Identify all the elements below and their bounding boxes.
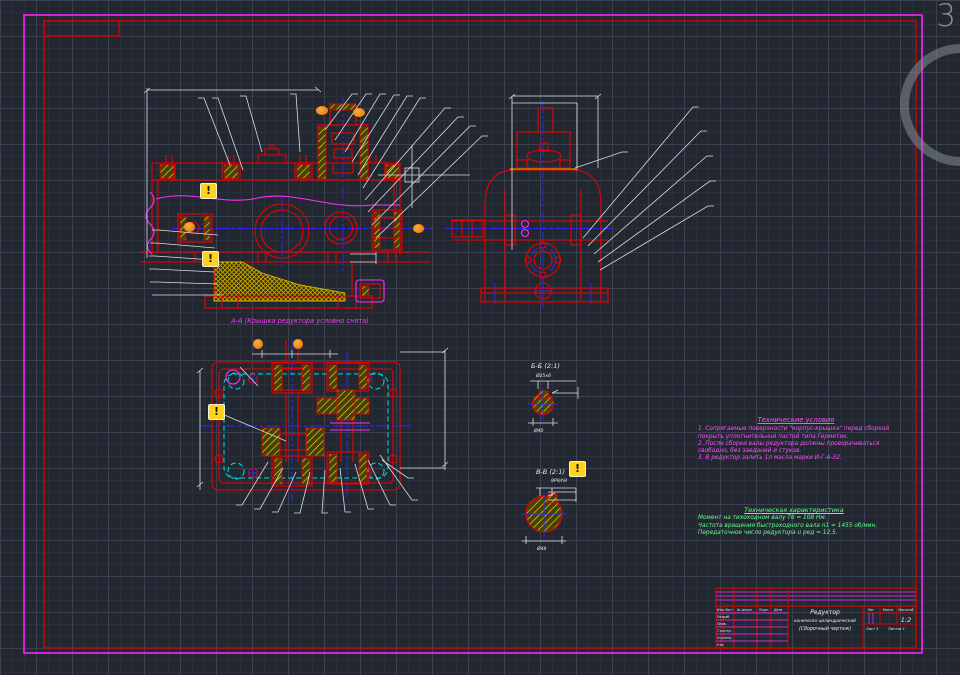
tb-product: Редуктор: [810, 609, 840, 616]
highlight-dot: [353, 108, 365, 117]
tech-conditions-title: Технические условия: [698, 416, 894, 424]
drawing-geometry: Б-Б (2:1) Ø25к6 Ø40 В-В (2:1) 8Р9/h9 Ø48…: [0, 0, 960, 675]
plan-view: [197, 340, 448, 513]
tb-col-lit: Лит.: [866, 608, 874, 612]
detail-b-view: Б-Б (2:1) Ø25к6 Ø40: [528, 362, 578, 434]
tb-row-tkontr: Т.контр.: [717, 629, 732, 633]
side-view: [446, 94, 716, 308]
highlight-dot: [316, 106, 328, 115]
tb-sheets: Листов 1: [887, 627, 905, 631]
tech-characteristics-title: Техническая характеристика: [698, 506, 890, 514]
front-view-caption: А-А (Крышка редуктора условно снята): [215, 317, 385, 325]
tb-hdr-sign: Подп.: [759, 608, 769, 612]
tech-conditions-line: 1. Сопрягаемые поверхности "корпус-крышк…: [698, 426, 894, 440]
tech-conditions-line: 3. В редуктор залить 1л масла марки И-Г-…: [698, 455, 894, 462]
tech-conditions-line: 2. После сборки валы редуктора должны пр…: [698, 441, 894, 455]
detail-v-dim-bottom: Ø48: [536, 545, 547, 552]
tech-characteristics-line: Момент на тихоходном валу Т6 = 108 Нм.: [698, 515, 890, 523]
tb-col-mass: Масса: [883, 608, 893, 612]
warning-icon[interactable]: !: [202, 251, 219, 267]
front-section-view: [140, 87, 488, 308]
tb-hdr-izm: Изм.: [717, 608, 725, 612]
tb-hdr-list: Лист: [724, 608, 733, 612]
highlight-dot: [293, 339, 303, 349]
title-block: Изм. Лист № докум. Подп. Дата Разраб. Пр…: [716, 588, 916, 648]
detail-v-label: В-В (2:1): [536, 468, 565, 476]
tech-characteristics-line: Частота вращения быстроходного вала n1 =…: [698, 523, 890, 531]
tb-row-razrab: Разраб.: [717, 615, 730, 619]
tb-hdr-doc: № докум.: [736, 608, 753, 612]
sheet-frame: [24, 15, 922, 653]
detail-v-dim-top: 8Р9/h9: [551, 478, 567, 484]
tech-characteristics: Техническая характеристика Момент на тих…: [698, 506, 890, 538]
detail-b-label: Б-Б (2:1): [531, 362, 560, 370]
detail-v-view: В-В (2:1) 8Р9/h9 Ø48: [521, 468, 576, 552]
top-left-stamp-box: [44, 21, 119, 36]
detail-b-dim-bottom: Ø40: [533, 427, 544, 434]
highlight-dot: [184, 222, 195, 232]
cad-canvas[interactable]: Б-Б (2:1) Ø25к6 Ø40 В-В (2:1) 8Р9/h9 Ø48…: [0, 0, 960, 675]
tb-doc-type: (Сборочный чертеж): [799, 626, 851, 632]
warning-icon[interactable]: !: [569, 461, 586, 477]
tb-row-prov: Пров.: [717, 622, 727, 626]
detail-b-dim-top: Ø25к6: [535, 372, 551, 379]
tb-row-utv: Утв.: [717, 643, 724, 647]
tech-conditions: Технические условия 1. Сопрягаемые повер…: [698, 416, 894, 463]
tb-hdr-date: Дата: [773, 608, 782, 612]
tb-scale-value: 1:2: [901, 616, 911, 624]
highlight-dot: [413, 224, 424, 233]
highlight-dot: [253, 339, 263, 349]
warning-icon[interactable]: !: [208, 404, 225, 420]
tb-row-nkontr: Н.контр.: [717, 636, 732, 640]
page-number-watermark: 3: [936, 0, 956, 34]
tb-sheet: Лист 1: [865, 627, 879, 631]
tb-col-scale: Масштаб: [898, 608, 913, 612]
tb-product-type: коническо-цилиндрический: [794, 618, 856, 623]
tech-characteristics-line: Передаточное число редуктора u ред = 12,…: [698, 530, 890, 538]
warning-icon[interactable]: !: [200, 183, 217, 199]
